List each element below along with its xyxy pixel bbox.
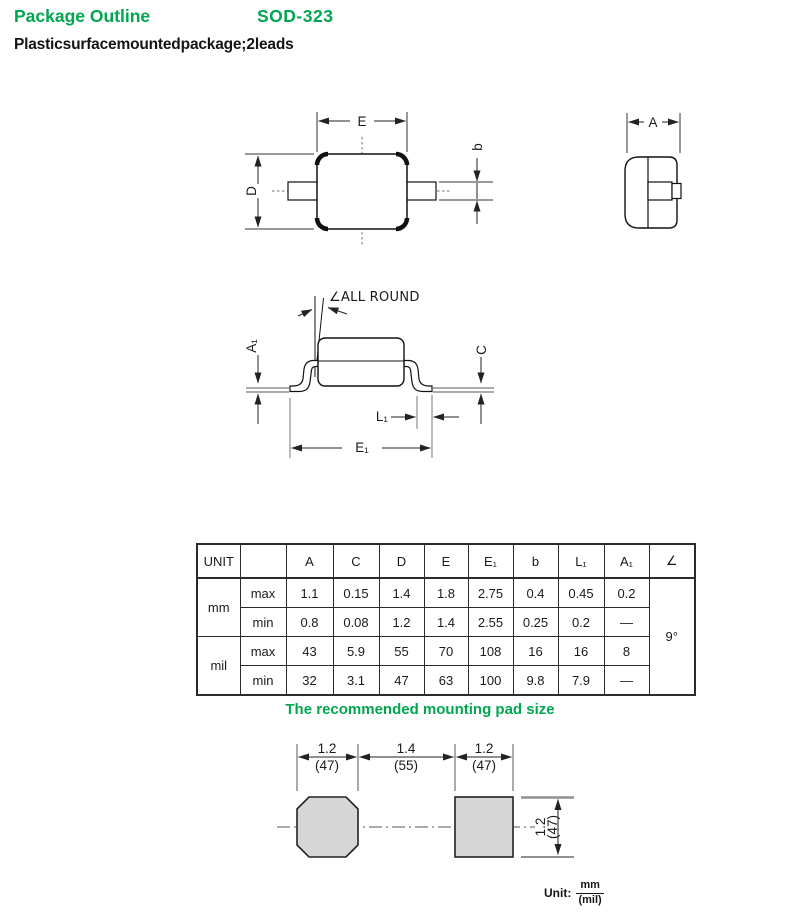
mounting-pad-drawing: 1.2 (47) 1.4 (55) 1.2 (47) 1.2 (47) bbox=[0, 735, 798, 910]
top-view-lead-left bbox=[288, 182, 318, 200]
col-header-A: A bbox=[286, 544, 333, 578]
unit-label: Unit: bbox=[544, 886, 571, 900]
dim-label-E1: E₁ bbox=[355, 440, 369, 455]
col-header-unit: UNIT bbox=[197, 544, 240, 578]
top-view-drawing: E D b bbox=[244, 112, 493, 246]
col-header-b: b bbox=[513, 544, 558, 578]
limit-cell: min bbox=[240, 608, 286, 637]
col-header-blank bbox=[240, 544, 286, 578]
col-header-C: C bbox=[333, 544, 379, 578]
angle-value-cell: 9° bbox=[649, 578, 695, 695]
dimensions-table: UNIT A C D E E₁ b L₁ A₁ ∠ mm max 1.1 0.1… bbox=[196, 543, 696, 696]
dimensions-table-wrap: UNIT A C D E E₁ b L₁ A₁ ∠ mm max 1.1 0.1… bbox=[196, 543, 696, 696]
pad-dim-left-mil: (47) bbox=[315, 758, 339, 773]
dim-label-E: E bbox=[357, 114, 366, 129]
unit-note: Unit: mm (mil) bbox=[544, 880, 604, 906]
mounting-pad-title: The recommended mounting pad size bbox=[160, 701, 680, 718]
col-header-E: E bbox=[424, 544, 468, 578]
unit-fraction: mm (mil) bbox=[576, 880, 604, 906]
top-view-body bbox=[317, 154, 407, 229]
table-row-mm-min: min 0.8 0.08 1.2 1.4 2.55 0.25 0.2 — bbox=[197, 608, 695, 637]
dim-label-D: D bbox=[244, 186, 259, 196]
pad-dim-left-mm: 1.2 bbox=[318, 741, 337, 756]
unit-numerator: mm bbox=[576, 880, 604, 894]
side-view-lead-left bbox=[290, 361, 318, 392]
dim-label-C: C bbox=[474, 345, 489, 355]
unit-cell-mm: mm bbox=[197, 578, 240, 637]
pad-right bbox=[455, 797, 513, 857]
pad-dim-height-mil: (47) bbox=[545, 815, 560, 839]
col-header-D: D bbox=[379, 544, 424, 578]
pad-dim-right-mil: (47) bbox=[472, 758, 496, 773]
end-view-lead bbox=[648, 182, 672, 200]
angle-note: ∠ALL ROUND bbox=[329, 290, 420, 305]
unit-denominator: (mil) bbox=[576, 894, 604, 907]
side-view-lead-right bbox=[404, 361, 432, 392]
table-header-row: UNIT A C D E E₁ b L₁ A₁ ∠ bbox=[197, 544, 695, 578]
col-header-angle: ∠ bbox=[649, 544, 695, 578]
limit-cell: max bbox=[240, 637, 286, 666]
dim-label-L1: L₁ bbox=[376, 409, 389, 424]
datasheet-page: Package Outline SOD-323 Plastic surface … bbox=[0, 0, 798, 912]
dim-label-A: A bbox=[648, 115, 657, 130]
table-row-mm-max: mm max 1.1 0.15 1.4 1.8 2.75 0.4 0.45 0.… bbox=[197, 578, 695, 608]
end-view-lead-tip bbox=[672, 184, 681, 199]
limit-cell: min bbox=[240, 666, 286, 696]
limit-cell: max bbox=[240, 578, 286, 608]
side-view-body bbox=[318, 338, 404, 386]
pad-left bbox=[297, 797, 358, 857]
side-view-drawing: ∠ALL ROUND A₁ C bbox=[244, 290, 494, 458]
col-header-A1: A₁ bbox=[604, 544, 649, 578]
table-row-mil-min: min 32 3.1 47 63 100 9.8 7.9 — bbox=[197, 666, 695, 696]
col-header-L1: L₁ bbox=[558, 544, 604, 578]
pad-dim-right-mm: 1.2 bbox=[475, 741, 494, 756]
pad-dim-gap-mm: 1.4 bbox=[397, 741, 416, 756]
package-outline-drawings: E D b A bbox=[0, 0, 798, 530]
dim-label-A1: A₁ bbox=[244, 339, 259, 353]
end-view-drawing: A bbox=[625, 113, 681, 228]
table-row-mil-max: mil max 43 5.9 55 70 108 16 16 8 bbox=[197, 637, 695, 666]
top-view-lead-right bbox=[406, 182, 436, 200]
unit-cell-mil: mil bbox=[197, 637, 240, 696]
pad-dim-gap-mil: (55) bbox=[394, 758, 418, 773]
col-header-E1: E₁ bbox=[468, 544, 513, 578]
dim-label-b: b bbox=[470, 143, 485, 151]
